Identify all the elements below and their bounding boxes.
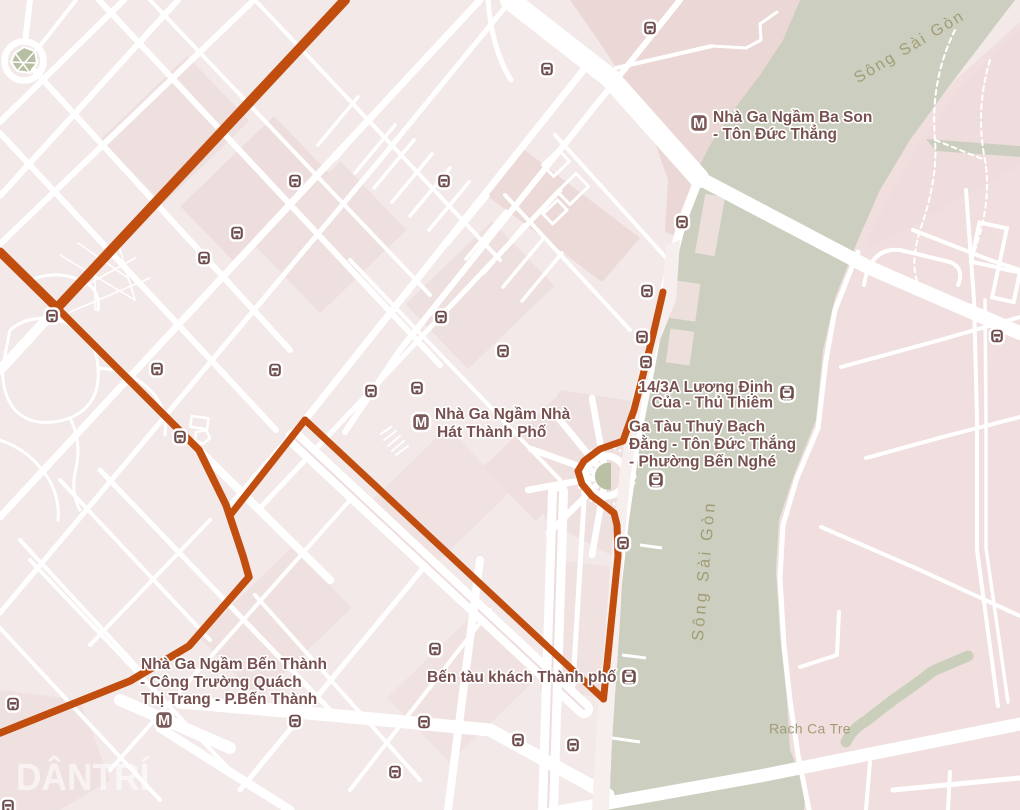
svg-text:Đằng - Tôn Đức Thắng: Đằng - Tôn Đức Thắng [629,435,796,453]
svg-text:Thị Trang - P.Bến Thành: Thị Trang - P.Bến Thành [141,691,317,708]
svg-text:Bến tàu khách Thành phố: Bến tàu khách Thành phố [427,669,617,686]
svg-text:Của - Thủ Thiêm: Của - Thủ Thiêm [652,395,773,412]
svg-text:Hát Thành Phố: Hát Thành Phố [437,424,547,441]
svg-text:- Tôn Đức Thẳng: - Tôn Đức Thẳng [713,125,837,143]
svg-text:Rach Ca Tre: Rach Ca Tre [769,721,851,737]
svg-text:Ga Tàu Thuỷ Bạch: Ga Tàu Thuỷ Bạch [629,419,765,436]
svg-text:Nhà Ga Ngầm Ba Son: Nhà Ga Ngầm Ba Son [713,109,872,126]
svg-text:- Phường Bến Nghé: - Phường Bến Nghé [629,454,776,471]
svg-text:Nhà Ga Ngầm Bến Thành: Nhà Ga Ngầm Bến Thành [141,656,327,673]
svg-text:Nhà Ga Ngầm Nhà: Nhà Ga Ngầm Nhà [435,406,571,423]
svg-text:DÂNTRÍ: DÂNTRÍ [16,755,150,798]
svg-text:- Công Trường Quách: - Công Trường Quách [140,674,302,691]
svg-text:14/3A Lương Định: 14/3A Lương Định [639,379,773,396]
